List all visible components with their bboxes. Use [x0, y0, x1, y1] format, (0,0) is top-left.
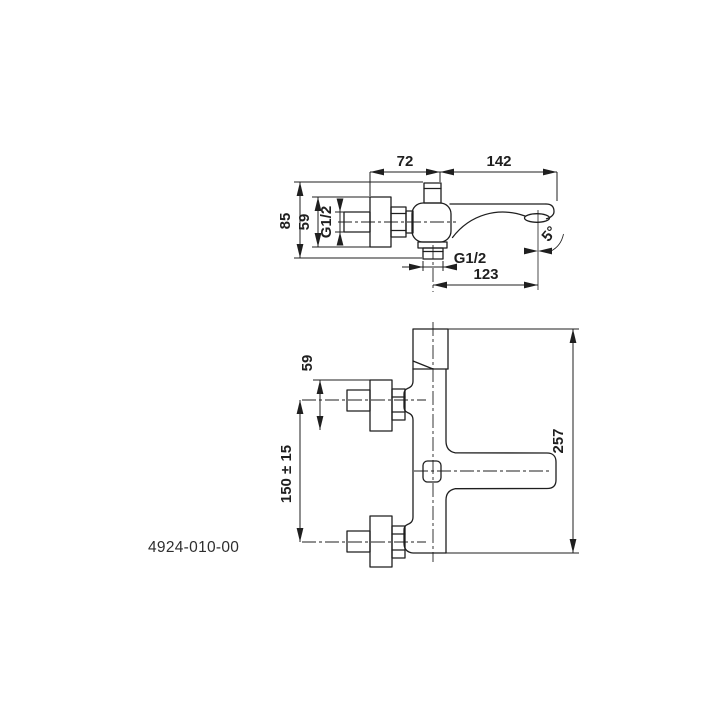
dim-label-257: 257 [550, 428, 567, 453]
top-view: 72 142 85 59 G1/2 [277, 153, 564, 292]
technical-drawing-page: 72 142 85 59 G1/2 [0, 0, 720, 720]
front-view-body-outline [347, 329, 556, 567]
dim-label-142: 142 [486, 153, 511, 170]
product-code: 4924-010-00 [148, 539, 239, 556]
dim-label-72: 72 [397, 153, 414, 170]
dim-label-g12-bottom: G1/2 [454, 250, 487, 267]
top-reach-dimension-123: 123 [433, 266, 538, 288]
dim-label-85: 85 [277, 213, 294, 230]
dim-label-59-front: 59 [299, 355, 316, 372]
upper-flange [370, 380, 392, 431]
front-diverter-knob [423, 461, 441, 482]
front-view: 59 150 ± 15 257 [278, 322, 579, 567]
top-valve-body [412, 203, 451, 242]
top-handle-stem [424, 183, 441, 203]
spout-outlet [525, 214, 550, 223]
upper-hex-nut [392, 389, 405, 420]
top-thread-dimension-side: G1/2 [318, 199, 344, 246]
front-upper-connector [347, 380, 405, 431]
lower-flange [370, 516, 392, 567]
lower-pipe-stub [347, 531, 370, 552]
top-width-dimensions: 72 142 [370, 153, 557, 201]
upper-pipe-stub [347, 390, 370, 411]
front-mounting-dimension-150: 150 ± 15 [278, 400, 303, 542]
front-cartridge-top [413, 329, 448, 369]
dim-label-59-top: 59 [296, 214, 313, 231]
dim-label-5deg: 5° [538, 223, 560, 245]
top-view-body-outline [344, 183, 554, 259]
faucet-dimension-drawing: 72 142 85 59 G1/2 [0, 0, 720, 720]
front-lower-connector [347, 516, 405, 567]
dim-label-g12-side: G1/2 [318, 206, 335, 239]
dim-label-123: 123 [473, 266, 498, 283]
top-bottom-stub [418, 242, 447, 259]
dim-label-150: 150 ± 15 [278, 445, 295, 503]
front-view-centerlines [302, 322, 552, 562]
front-flange-dimension-59: 59 [299, 355, 370, 430]
front-height-dimension-257: 257 [446, 329, 579, 553]
top-spout [450, 204, 554, 238]
front-body-right-edge-and-spout [446, 369, 556, 553]
